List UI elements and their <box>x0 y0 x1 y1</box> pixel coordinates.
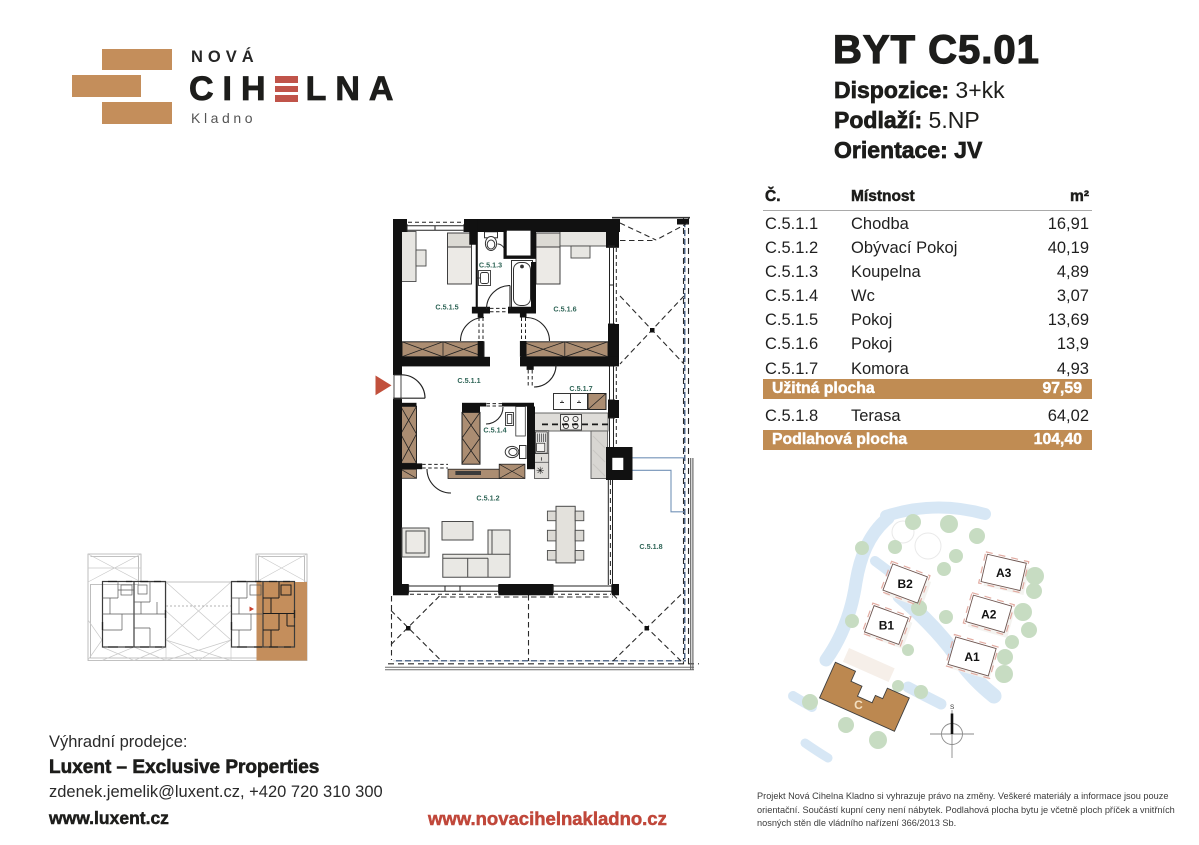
svg-text:✳: ✳ <box>536 466 544 477</box>
svg-text:C.5.1.4: C.5.1.4 <box>483 426 506 435</box>
svg-text:A2: A2 <box>981 608 997 622</box>
svg-text:B2: B2 <box>898 577 914 591</box>
svg-text:A3: A3 <box>996 566 1012 580</box>
svg-text:C.5.1.2: C.5.1.2 <box>476 494 499 503</box>
svg-text:C.5.1.1: C.5.1.1 <box>457 376 480 385</box>
svg-text:C: C <box>854 698 863 712</box>
svg-text:A1: A1 <box>964 650 980 664</box>
svg-text:C.5.1.5: C.5.1.5 <box>435 303 458 312</box>
svg-text:C.5.1.7: C.5.1.7 <box>569 384 592 393</box>
svg-text:C.5.1.3: C.5.1.3 <box>479 261 502 270</box>
svg-text:C.5.1.8: C.5.1.8 <box>639 542 662 551</box>
svg-text:C.5.1.6: C.5.1.6 <box>553 305 576 314</box>
svg-text:B1: B1 <box>879 619 895 633</box>
svg-text:S: S <box>950 704 955 711</box>
